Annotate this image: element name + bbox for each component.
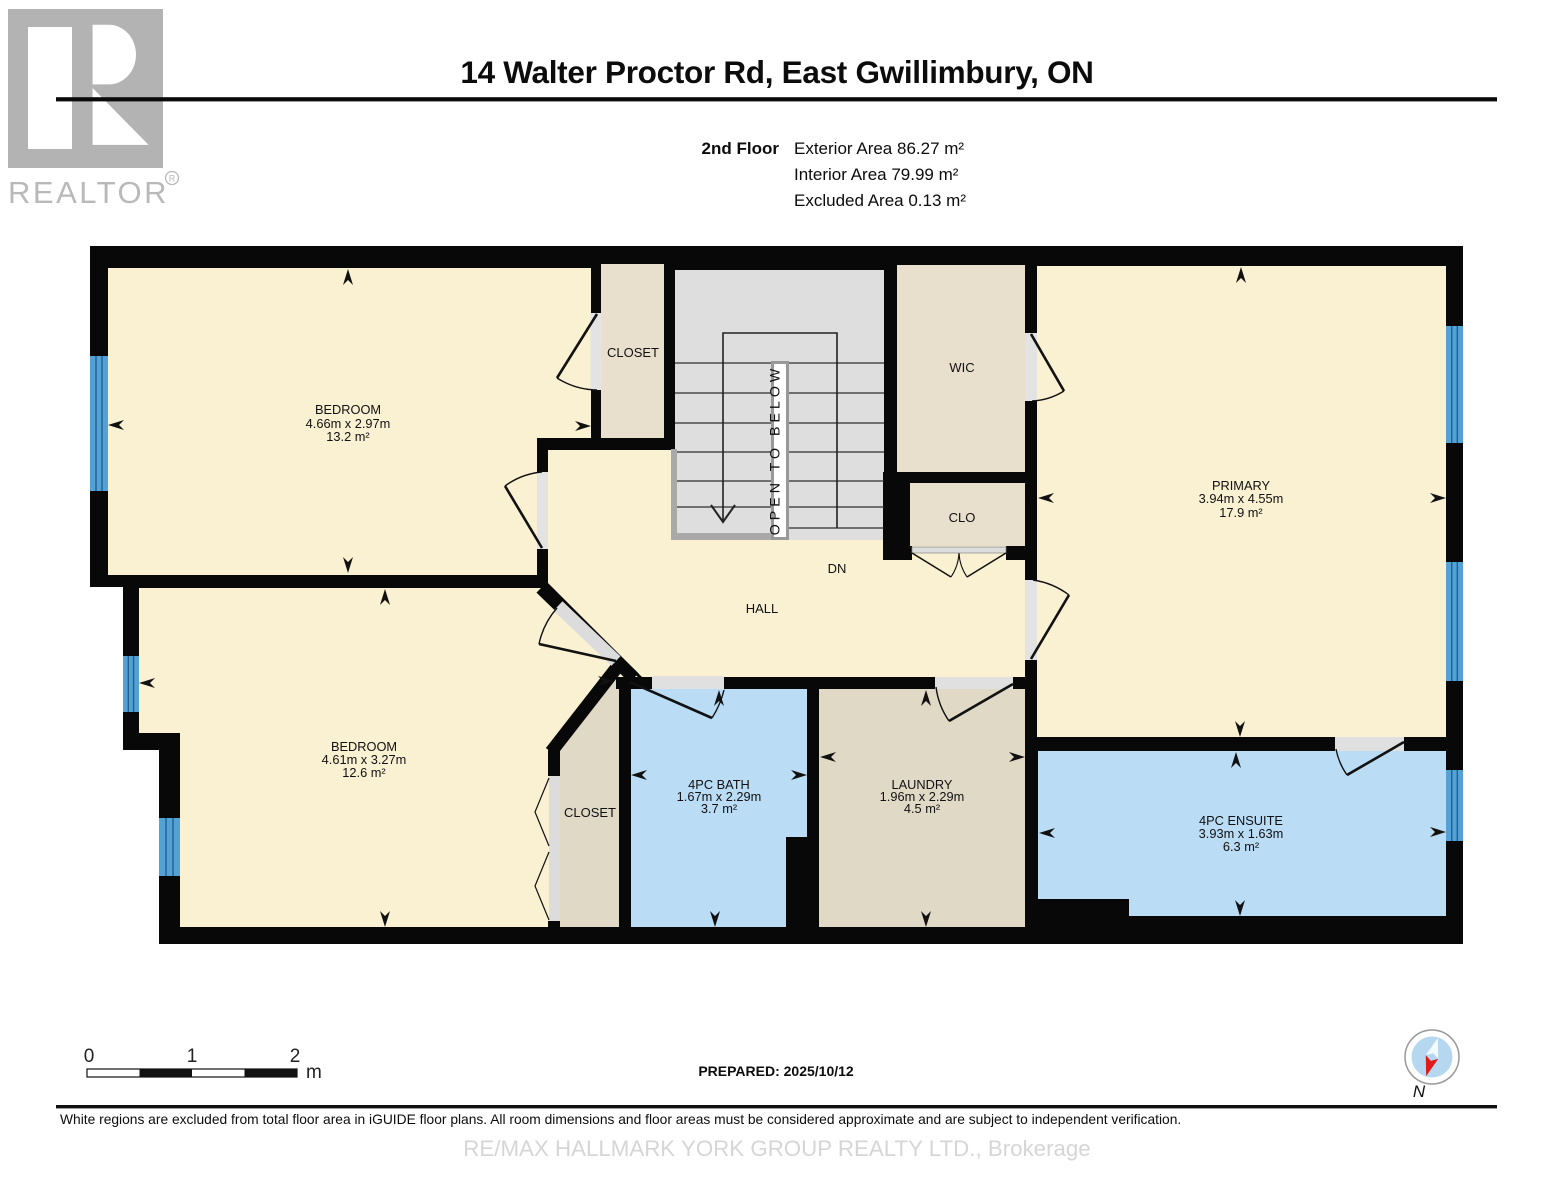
svg-text:PREPARED: 2025/10/12: PREPARED: 2025/10/12 xyxy=(698,1063,854,1079)
svg-text:3.7 m²: 3.7 m² xyxy=(701,801,738,816)
svg-text:BEDROOM: BEDROOM xyxy=(315,402,381,417)
svg-text:2nd Floor: 2nd Floor xyxy=(702,139,780,158)
svg-text:4.5 m²: 4.5 m² xyxy=(904,801,941,816)
svg-text:CLOSET: CLOSET xyxy=(607,345,659,360)
svg-text:HALL: HALL xyxy=(746,601,779,616)
svg-text:OPEN TO BELOW: OPEN TO BELOW xyxy=(768,365,784,536)
svg-text:14 Walter Proctor Rd, East Gwi: 14 Walter Proctor Rd, East Gwillimbury, … xyxy=(460,54,1093,90)
svg-text:CLO: CLO xyxy=(949,510,976,525)
svg-text:Excluded Area 0.13 m²: Excluded Area 0.13 m² xyxy=(794,191,966,210)
svg-text:2: 2 xyxy=(290,1046,301,1067)
svg-text:CLOSET: CLOSET xyxy=(564,805,616,820)
svg-text:White regions are excluded fro: White regions are excluded from total fl… xyxy=(60,1112,1181,1127)
svg-text:Exterior Area 86.27 m²: Exterior Area 86.27 m² xyxy=(794,139,964,158)
svg-text:6.3 m²: 6.3 m² xyxy=(1223,839,1260,854)
svg-text:REALTOR: REALTOR xyxy=(8,175,169,210)
svg-text:Interior Area 79.99 m²: Interior Area 79.99 m² xyxy=(794,165,959,184)
svg-text:0: 0 xyxy=(84,1046,95,1067)
svg-text:17.9 m²: 17.9 m² xyxy=(1219,505,1263,520)
svg-text:3.94m x 4.55m: 3.94m x 4.55m xyxy=(1199,491,1284,506)
svg-text:WIC: WIC xyxy=(949,360,974,375)
svg-text:12.6 m²: 12.6 m² xyxy=(342,765,386,780)
svg-text:RE/MAX HALLMARK YORK GROUP REA: RE/MAX HALLMARK YORK GROUP REALTY LTD., … xyxy=(463,1136,1090,1161)
svg-text:DN: DN xyxy=(828,561,847,576)
svg-text:R: R xyxy=(169,174,176,184)
svg-text:m: m xyxy=(306,1062,322,1083)
svg-text:13.2 m²: 13.2 m² xyxy=(326,429,370,444)
svg-text:N: N xyxy=(1413,1082,1426,1101)
svg-text:1: 1 xyxy=(187,1046,198,1067)
